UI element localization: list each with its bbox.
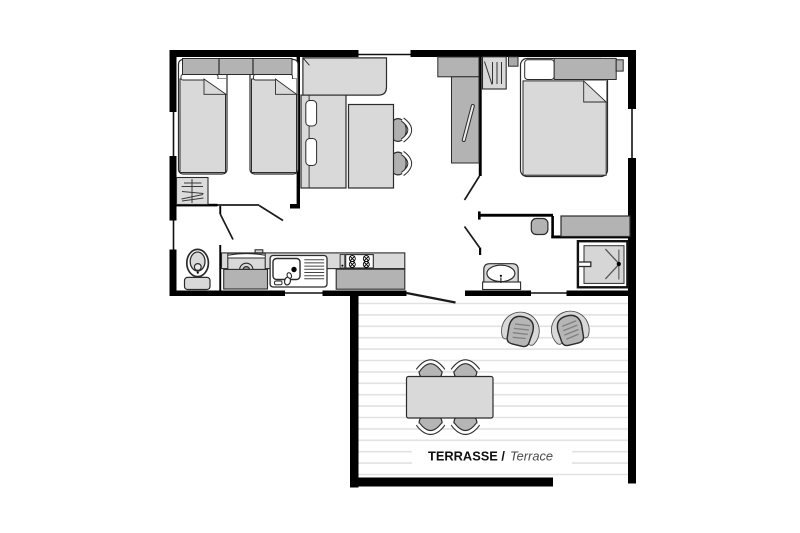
svg-text:TERRASSE /Terrace: TERRASSE /Terrace (428, 449, 553, 464)
